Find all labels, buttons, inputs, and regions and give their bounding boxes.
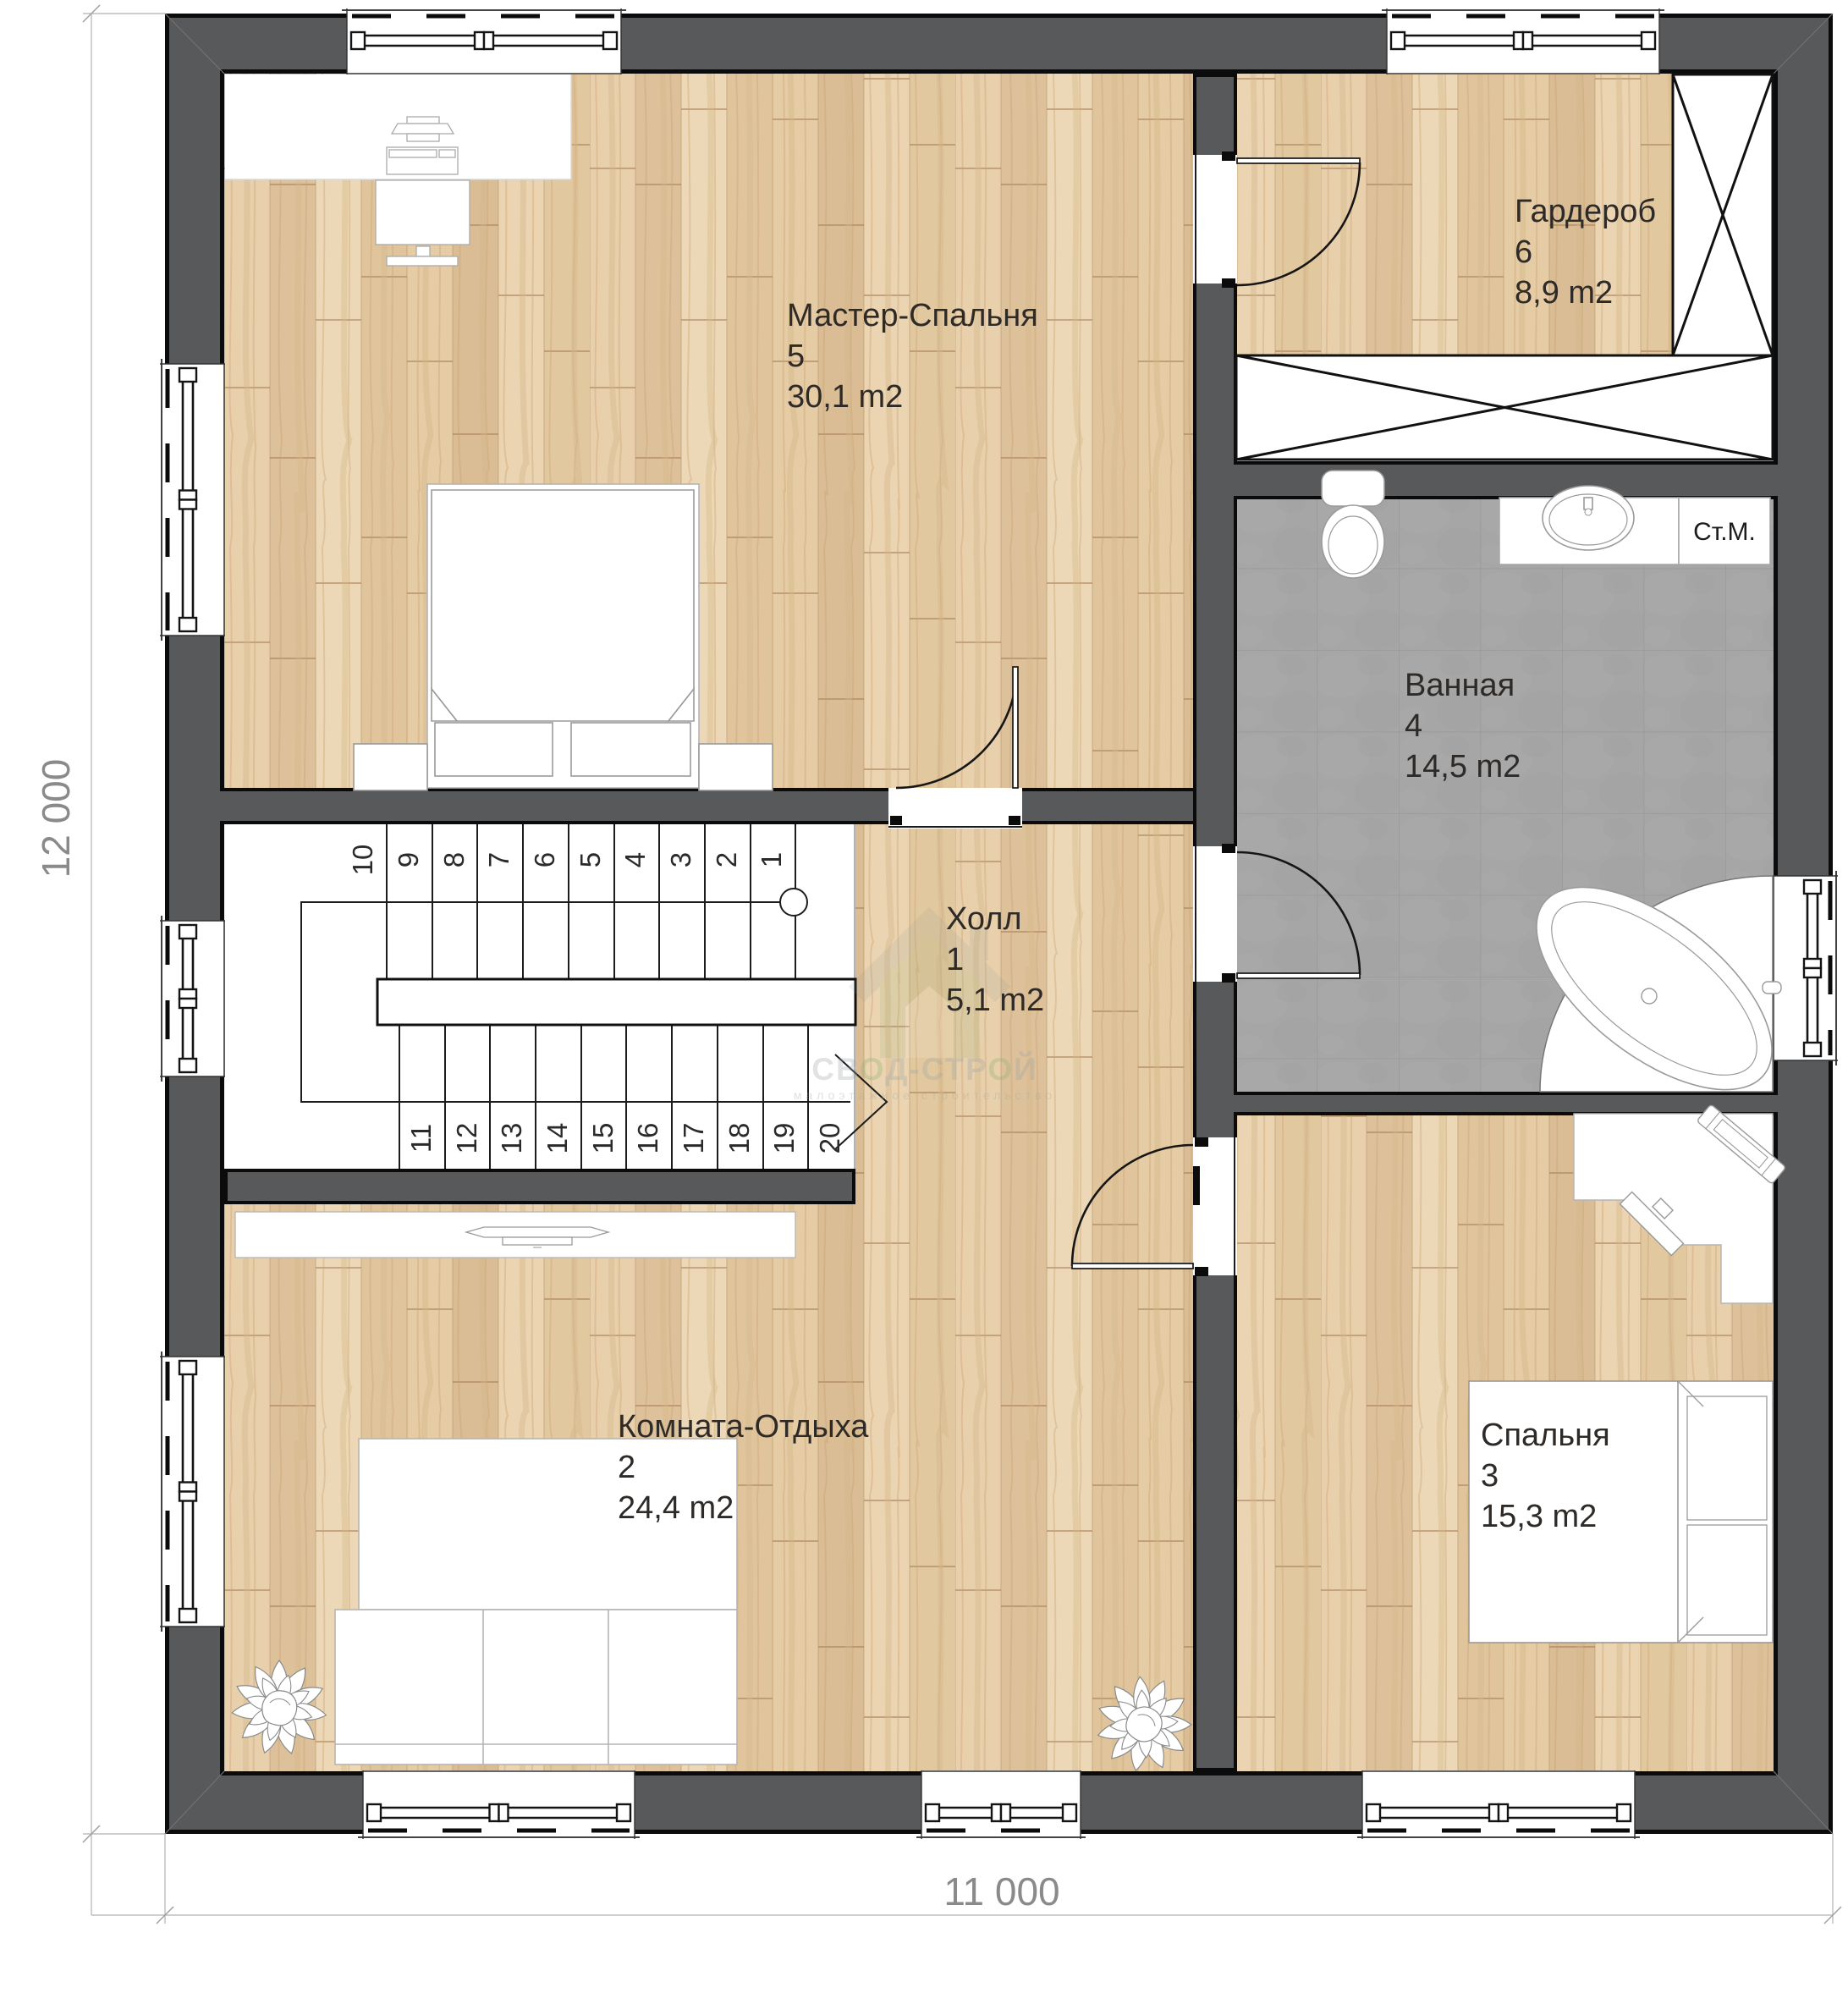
svg-text:Гардероб: Гардероб — [1515, 194, 1656, 229]
svg-text:14: 14 — [542, 1123, 573, 1154]
svg-text:2: 2 — [618, 1450, 635, 1485]
svg-text:Комната-Отдыха: Комната-Отдыха — [618, 1409, 869, 1445]
svg-text:18: 18 — [723, 1123, 755, 1154]
svg-text:2: 2 — [711, 852, 742, 867]
svg-text:13: 13 — [496, 1123, 527, 1154]
svg-text:12 000: 12 000 — [34, 759, 78, 878]
svg-text:14,5 m2: 14,5 m2 — [1405, 749, 1521, 785]
svg-text:5: 5 — [787, 339, 805, 374]
svg-text:15: 15 — [587, 1123, 619, 1154]
svg-text:5: 5 — [575, 852, 606, 867]
svg-text:8,9 m2: 8,9 m2 — [1515, 275, 1613, 311]
svg-text:16: 16 — [632, 1123, 663, 1154]
svg-text:Холл: Холл — [946, 901, 1022, 937]
svg-text:11 000: 11 000 — [943, 1869, 1059, 1913]
svg-text:Ст.М.: Ст.М. — [1693, 518, 1756, 546]
svg-text:6: 6 — [529, 852, 560, 867]
svg-text:17: 17 — [678, 1123, 709, 1154]
svg-text:Мастер-Спальня: Мастер-Спальня — [787, 298, 1038, 333]
svg-text:20: 20 — [814, 1123, 845, 1154]
svg-text:3: 3 — [665, 852, 696, 867]
svg-text:6: 6 — [1515, 234, 1532, 270]
svg-text:4: 4 — [619, 852, 651, 867]
svg-text:8: 8 — [438, 852, 470, 867]
svg-text:5,1 m2: 5,1 m2 — [946, 983, 1044, 1018]
svg-text:11: 11 — [405, 1124, 437, 1153]
svg-text:12: 12 — [451, 1123, 482, 1154]
svg-text:24,4 m2: 24,4 m2 — [618, 1490, 734, 1526]
svg-text:7: 7 — [483, 852, 514, 867]
svg-text:10: 10 — [347, 845, 378, 876]
svg-text:СВОД-СТРОЙ: СВОД-СТРОЙ — [811, 1051, 1037, 1087]
svg-text:19: 19 — [768, 1123, 800, 1154]
svg-text:1: 1 — [946, 942, 964, 977]
svg-text:3: 3 — [1481, 1458, 1499, 1494]
svg-text:4: 4 — [1405, 708, 1422, 744]
svg-text:Ванная: Ванная — [1405, 668, 1515, 703]
svg-text:Спальня: Спальня — [1481, 1418, 1610, 1453]
svg-text:1: 1 — [756, 852, 787, 867]
svg-text:30,1 m2: 30,1 m2 — [787, 379, 903, 415]
svg-text:малоэтажное строительство: малоэтажное строительство — [794, 1088, 1056, 1102]
svg-text:15,3 m2: 15,3 m2 — [1481, 1499, 1597, 1534]
svg-text:9: 9 — [393, 852, 424, 867]
